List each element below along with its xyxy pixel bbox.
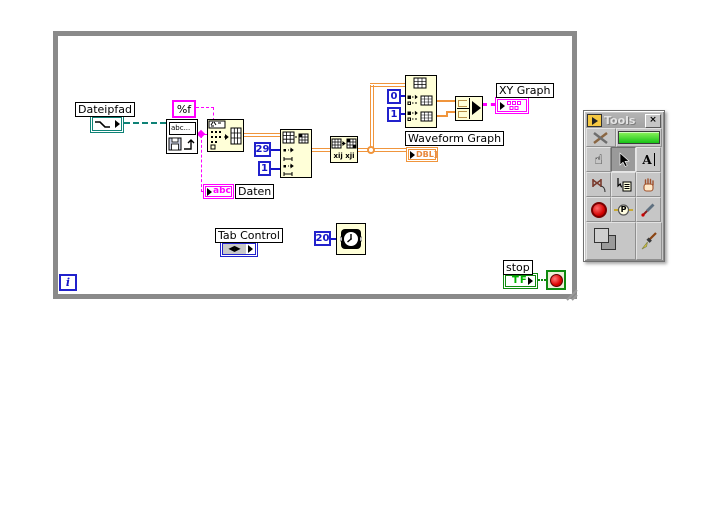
array1d-wire-a[interactable]	[437, 100, 455, 102]
stop-label[interactable]: stop	[503, 260, 533, 275]
scroll-window-tool[interactable]	[636, 172, 661, 197]
string-type-glyph: abc	[213, 187, 231, 196]
tab-control-terminal[interactable]: ◀▶	[220, 241, 258, 257]
bundle-node[interactable]	[455, 96, 483, 121]
array-wire-junction	[367, 146, 375, 154]
terminal-out-arrow-icon	[115, 120, 120, 128]
transpose-icon	[331, 138, 357, 152]
path-glyph-icon	[94, 119, 112, 129]
xy-graph-terminal[interactable]	[495, 97, 529, 114]
probe-p-glyph: P	[621, 206, 627, 214]
spreadsheet-string-to-array-node[interactable]	[207, 119, 244, 152]
breakpoint-icon	[591, 202, 607, 218]
eyedropper-icon	[640, 202, 657, 218]
terminal-out-arrow-icon	[248, 245, 253, 253]
green-led-icon	[618, 131, 660, 144]
close-icon[interactable]: ×	[645, 114, 661, 128]
cluster-type-glyph	[507, 101, 522, 110]
daten-label[interactable]: Daten	[235, 184, 274, 199]
array-subset-icon	[281, 130, 311, 177]
subset-length-constant[interactable]: 1	[258, 161, 271, 176]
set-color-tool[interactable]	[586, 222, 636, 260]
probe-data-tool[interactable]: P	[611, 197, 636, 222]
crossed-tools-icon	[592, 131, 610, 145]
paintbrush-icon	[639, 230, 659, 252]
bundle-output-arrow-icon	[472, 101, 481, 115]
loop-condition-terminal[interactable]	[546, 270, 566, 290]
daten-string-indicator[interactable]: abc	[203, 184, 234, 199]
dbl-type-glyph: DBL]	[416, 151, 438, 159]
stop-boolean-terminal[interactable]: TF	[503, 273, 538, 289]
dateipfad-label[interactable]: Dateipfad	[75, 102, 135, 117]
connect-wire-tool[interactable]	[586, 172, 611, 197]
waveform-graph-label[interactable]: Waveform Graph	[405, 131, 504, 146]
wait-ms-constant[interactable]: 20	[314, 231, 331, 246]
array2d-wire-3[interactable]	[358, 148, 406, 152]
tab-control-label[interactable]: Tab Control	[215, 228, 283, 243]
paintbrush-tool[interactable]	[636, 222, 662, 260]
finger-icon: ☝	[594, 153, 603, 167]
edit-text-tool[interactable]: A	[636, 147, 661, 172]
path-wire[interactable]	[124, 122, 166, 124]
bundle-input-cell-1	[457, 98, 470, 109]
subset-index-constant[interactable]: 29	[254, 142, 271, 157]
text-a-glyph: A	[642, 154, 651, 166]
position-select-tool[interactable]	[611, 147, 636, 172]
wait-clock-icon	[340, 228, 362, 250]
array1d-wire-b3[interactable]	[446, 111, 455, 113]
terminal-in-arrow-icon	[410, 151, 415, 159]
tools-window-title: Tools	[604, 114, 643, 127]
array2d-wire-1[interactable]	[244, 133, 280, 137]
array-subset-node[interactable]	[280, 129, 312, 178]
labview-app-icon	[587, 114, 602, 127]
xy-graph-label[interactable]: XY Graph	[496, 83, 554, 98]
array2d-wire-2[interactable]	[312, 148, 330, 152]
index-array-icon	[406, 76, 436, 127]
tf-type-glyph: TF	[512, 276, 528, 286]
set-breakpoint-tool[interactable]	[586, 197, 611, 222]
wire-spool-icon	[590, 177, 607, 193]
waveform-graph-terminal[interactable]: DBL]	[406, 147, 438, 162]
auto-select-led[interactable]	[616, 128, 662, 147]
loop-iteration-terminal[interactable]: i	[59, 274, 77, 291]
loop-resize-corner[interactable]	[564, 287, 578, 301]
while-loop-border[interactable]	[53, 31, 577, 299]
format-string-wire-h[interactable]	[196, 107, 214, 108]
tab-enum-glyph: ◀▶	[223, 244, 246, 254]
operate-value-tool[interactable]: ☝	[586, 147, 611, 172]
transpose-2d-array-node[interactable]: xij xji	[330, 136, 358, 163]
terminal-in-arrow-icon	[207, 188, 212, 196]
menu-cursor-icon	[615, 177, 632, 193]
index0-constant[interactable]: 0	[387, 89, 401, 104]
tools-palette-window: Tools × ☝	[583, 110, 665, 262]
transpose-formula-glyph: xij xji	[331, 152, 357, 160]
iteration-glyph: i	[66, 277, 70, 288]
tools-titlebar[interactable]: Tools ×	[586, 113, 662, 128]
stop-wire[interactable]	[538, 279, 546, 281]
terminal-in-arrow-icon	[500, 102, 505, 110]
cursor-arrow-icon	[616, 152, 631, 168]
array2d-wire-v[interactable]	[370, 85, 374, 150]
length1-wire[interactable]	[271, 168, 280, 170]
array2d-wire-4[interactable]	[370, 83, 405, 87]
dateipfad-path-terminal[interactable]	[90, 115, 124, 133]
block-diagram-canvas: Dateipfad abc... %f	[0, 0, 706, 512]
wait-ms-node[interactable]	[336, 223, 366, 255]
foreground-color-swatch[interactable]	[594, 228, 609, 243]
hand-icon	[640, 177, 657, 193]
index1-constant[interactable]: 1	[387, 107, 401, 122]
get-color-tool[interactable]	[636, 197, 661, 222]
terminal-out-arrow-icon	[528, 277, 533, 285]
index29-wire[interactable]	[270, 149, 280, 151]
object-shortcut-menu-tool[interactable]	[611, 172, 636, 197]
stop-sign-icon	[550, 274, 563, 287]
text-cursor-icon	[654, 153, 655, 166]
automatic-tool-selection-button[interactable]	[586, 128, 616, 147]
cluster-wire[interactable]	[483, 103, 495, 106]
read-file-vi[interactable]: abc...	[166, 119, 198, 154]
index-array-node[interactable]	[405, 75, 437, 128]
spreadsheet-string-to-array-icon	[208, 120, 243, 151]
format-string-constant[interactable]: %f	[172, 100, 196, 118]
string-branch-wire-v[interactable]	[201, 135, 202, 192]
read-vi-text-box: abc...	[169, 122, 196, 135]
floppy-disk-icon	[168, 135, 196, 153]
bundle-input-cell-2	[457, 109, 470, 119]
